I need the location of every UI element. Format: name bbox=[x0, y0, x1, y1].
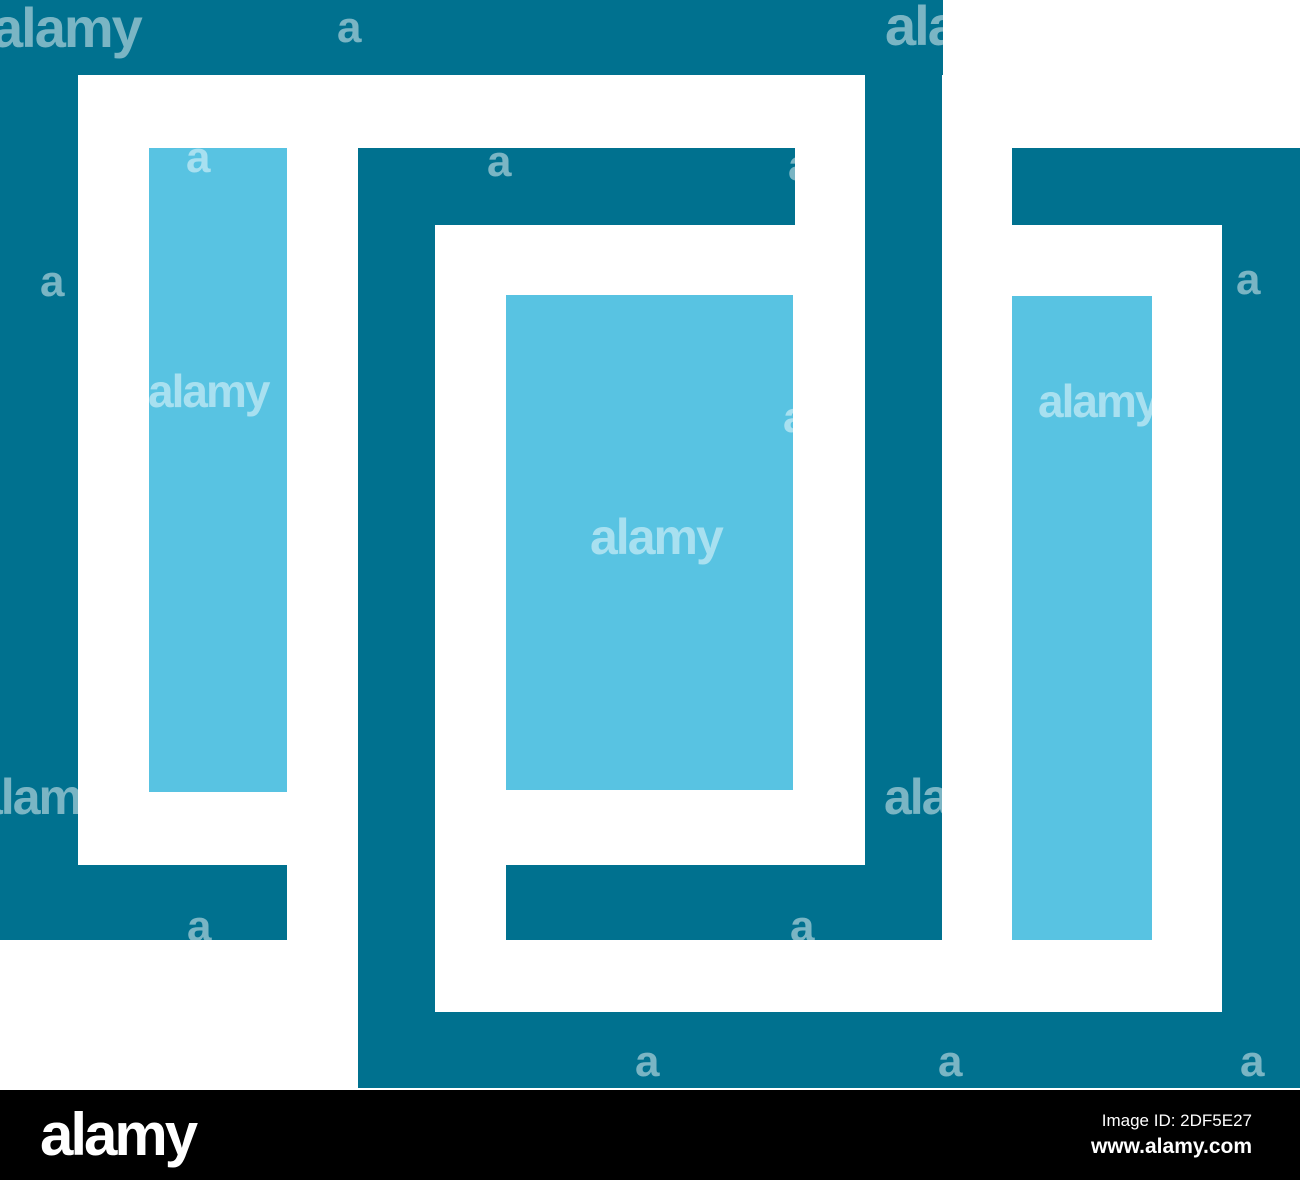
watermark-text: ala bbox=[885, 0, 957, 54]
watermark-text: ala bbox=[884, 772, 948, 822]
watermark-text: alamy bbox=[0, 772, 107, 822]
site-url-label: www.alamy.com bbox=[1091, 1133, 1252, 1160]
watermark-text: a bbox=[790, 905, 812, 949]
outer-frame-top-band bbox=[0, 0, 943, 75]
right-frame-right-band bbox=[1222, 148, 1300, 1088]
watermark-text: alamy bbox=[148, 368, 268, 414]
left-lightblue-bar bbox=[149, 148, 287, 792]
watermark-text: a bbox=[487, 140, 509, 184]
artwork-canvas: alamyaalaaaaaaalamyalamyaalamyalamyalaaa… bbox=[0, 0, 1300, 1090]
watermark-text: a bbox=[938, 1040, 960, 1084]
image-id-label: Image ID: 2DF5E27 bbox=[1091, 1110, 1252, 1133]
watermark-text: a bbox=[1236, 258, 1258, 302]
outer-frame-inner-bottom-band bbox=[506, 865, 942, 940]
alamy-logo: alamy bbox=[40, 1108, 195, 1162]
outer-frame-right-band bbox=[865, 0, 942, 865]
watermark-text: a bbox=[1240, 1040, 1262, 1084]
watermark-text: a bbox=[186, 136, 208, 180]
watermark-text: alamy bbox=[1038, 378, 1158, 424]
watermark-text: alamy bbox=[0, 0, 141, 56]
bottom-band bbox=[358, 1012, 1300, 1088]
outer-frame-bottom-left-band bbox=[0, 865, 287, 940]
middle-frame-left-band bbox=[358, 148, 435, 1088]
watermark-text: a bbox=[788, 144, 810, 188]
middle-frame-top-band bbox=[358, 148, 795, 225]
watermark-text: a bbox=[337, 6, 359, 50]
watermark-text: a bbox=[187, 905, 209, 949]
stock-image-preview: alamyaalaaaaaaalamyalamyaalamyalamyalaaa… bbox=[0, 0, 1300, 1180]
watermark-text: a bbox=[40, 260, 62, 304]
watermark-text: a bbox=[783, 396, 805, 440]
watermark-text: a bbox=[635, 1040, 657, 1084]
watermark-text: alamy bbox=[590, 512, 722, 562]
watermark-footer-bar: alamy Image ID: 2DF5E27 www.alamy.com bbox=[0, 1090, 1300, 1180]
footer-right-block: Image ID: 2DF5E27 www.alamy.com bbox=[1091, 1110, 1252, 1160]
